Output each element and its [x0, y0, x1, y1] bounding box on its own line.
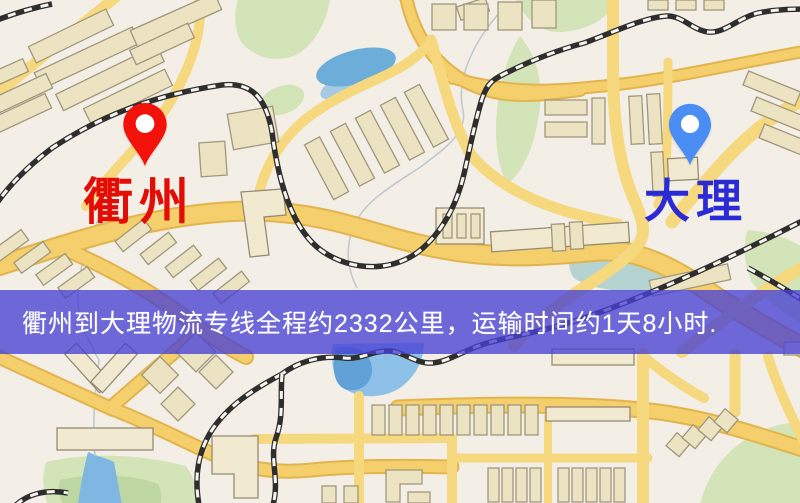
- origin-pin-hole: [136, 114, 155, 133]
- origin-pin-icon[interactable]: [118, 101, 172, 168]
- destination-pin-body: [669, 104, 711, 165]
- origin-label: 衢州: [83, 177, 195, 227]
- destination-pin-hole: [681, 115, 699, 133]
- map-screenshot: 衢州 大理 衢州到大理物流专线全程约2332公里，运输时间约1天8小时.: [0, 0, 800, 503]
- destination-pin-icon[interactable]: [664, 102, 716, 167]
- route-info-banner: 衢州到大理物流专线全程约2332公里，运输时间约1天8小时.: [0, 290, 800, 354]
- route-info-text: 衢州到大理物流专线全程约2332公里，运输时间约1天8小时.: [0, 304, 717, 340]
- railway-topleft-corner: [0, 4, 52, 22]
- map-canvas[interactable]: [0, 0, 800, 503]
- destination-label: 大理: [644, 179, 748, 225]
- origin-pin-body: [123, 103, 166, 166]
